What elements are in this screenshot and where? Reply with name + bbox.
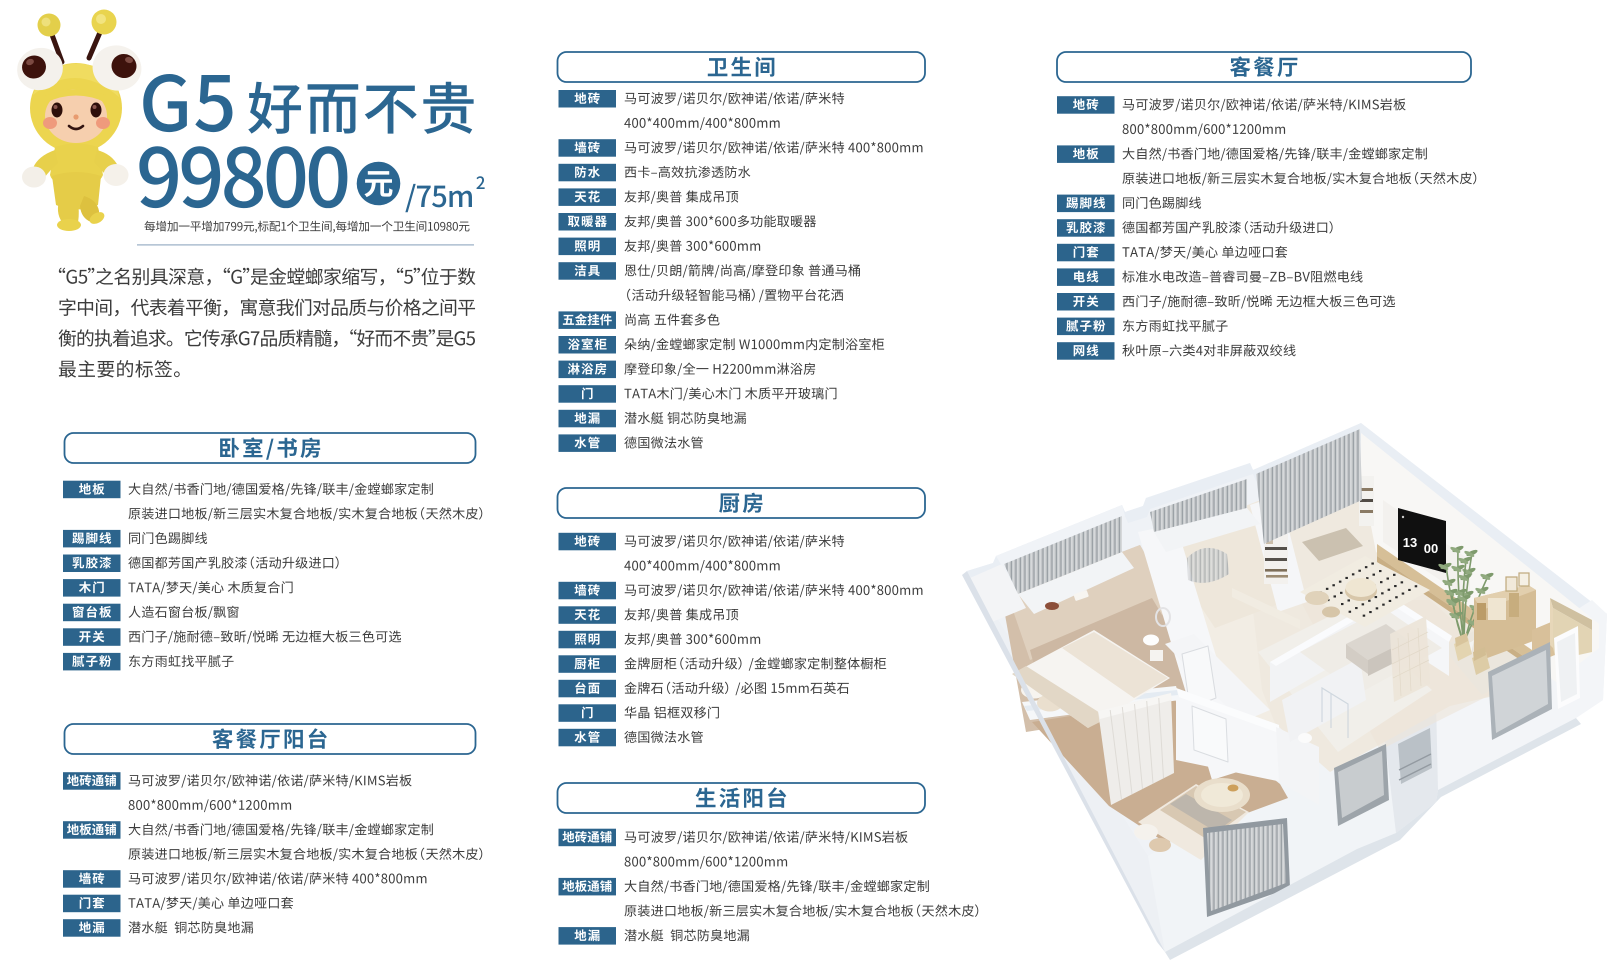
- svg-text:00: 00: [1424, 541, 1438, 556]
- svg-text:13: 13: [1403, 535, 1417, 550]
